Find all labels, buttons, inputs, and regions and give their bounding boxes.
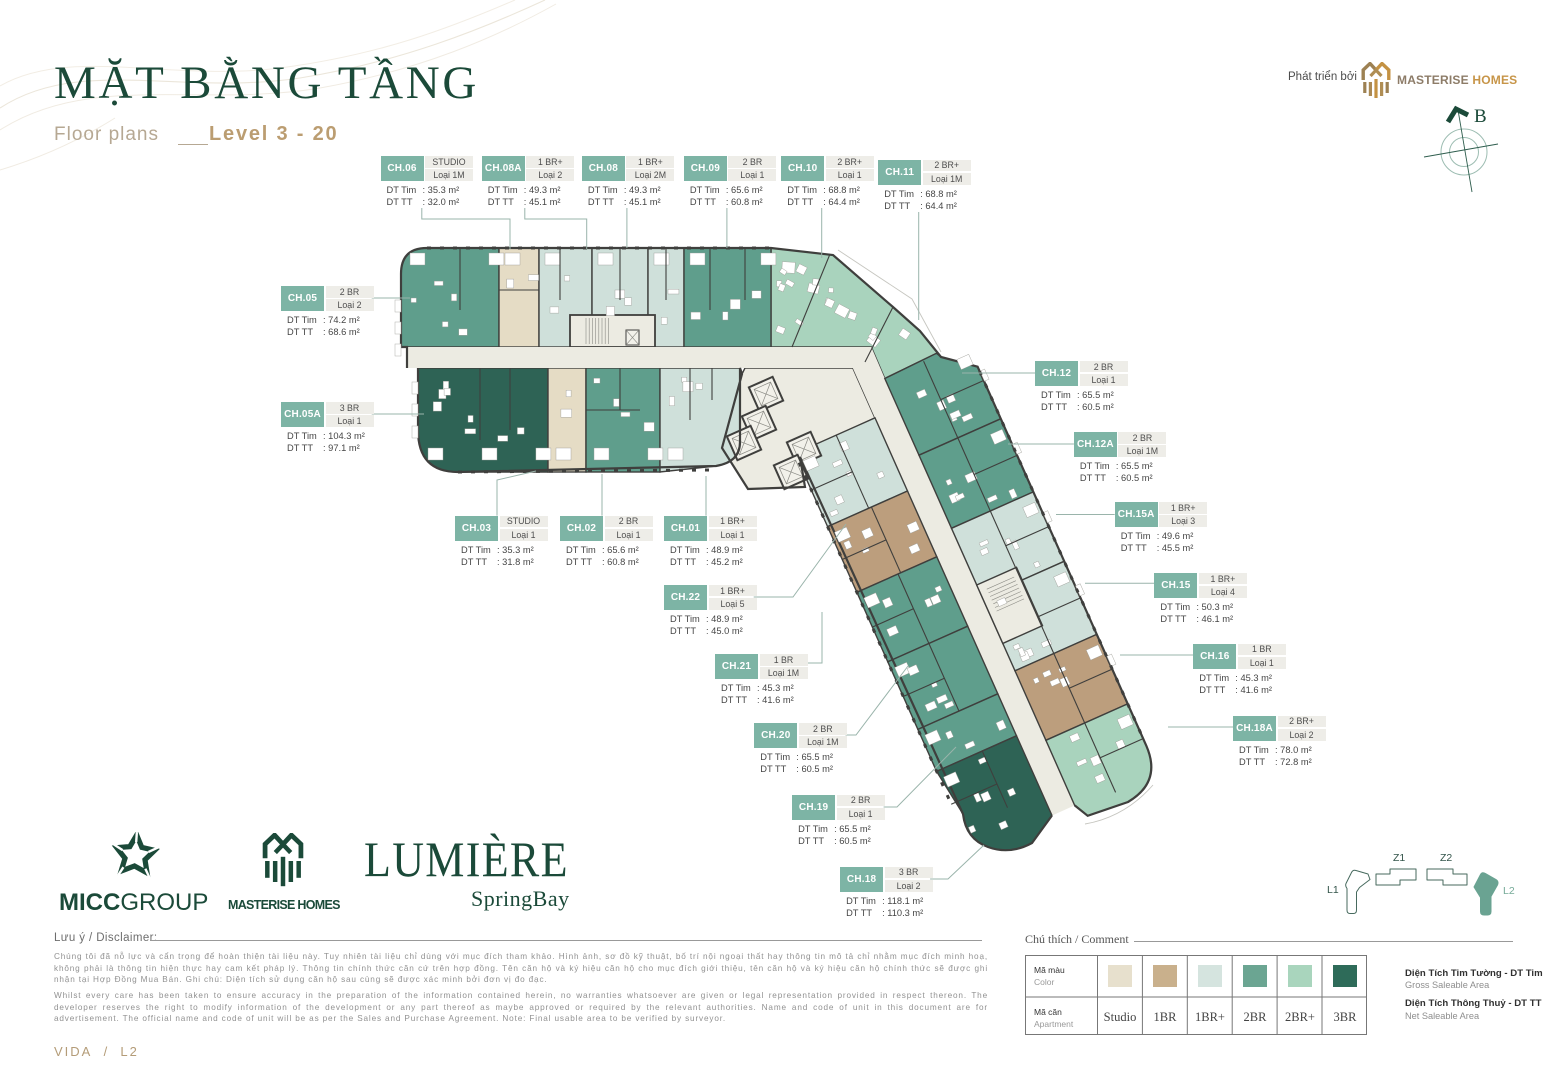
svg-text:2BR: 2BR: [1244, 1010, 1268, 1024]
svg-text:L2: L2: [1503, 885, 1515, 897]
svg-text:Mã căn: Mã căn: [1034, 1007, 1062, 1017]
svg-text:1BR+: 1BR+: [1195, 1010, 1225, 1024]
svg-text:Z2: Z2: [1440, 852, 1452, 864]
svg-text:Apartment: Apartment: [1034, 1019, 1074, 1029]
svg-text:B: B: [1474, 106, 1487, 127]
svg-text:Z1: Z1: [1393, 852, 1405, 864]
svg-text:1BR: 1BR: [1154, 1010, 1178, 1024]
svg-text:Mã màu: Mã màu: [1034, 965, 1065, 975]
svg-text:2BR+: 2BR+: [1285, 1010, 1315, 1024]
svg-text:Studio: Studio: [1104, 1010, 1137, 1024]
svg-text:3BR: 3BR: [1334, 1010, 1358, 1024]
svg-text:L1: L1: [1327, 884, 1339, 896]
svg-text:Color: Color: [1034, 977, 1054, 987]
